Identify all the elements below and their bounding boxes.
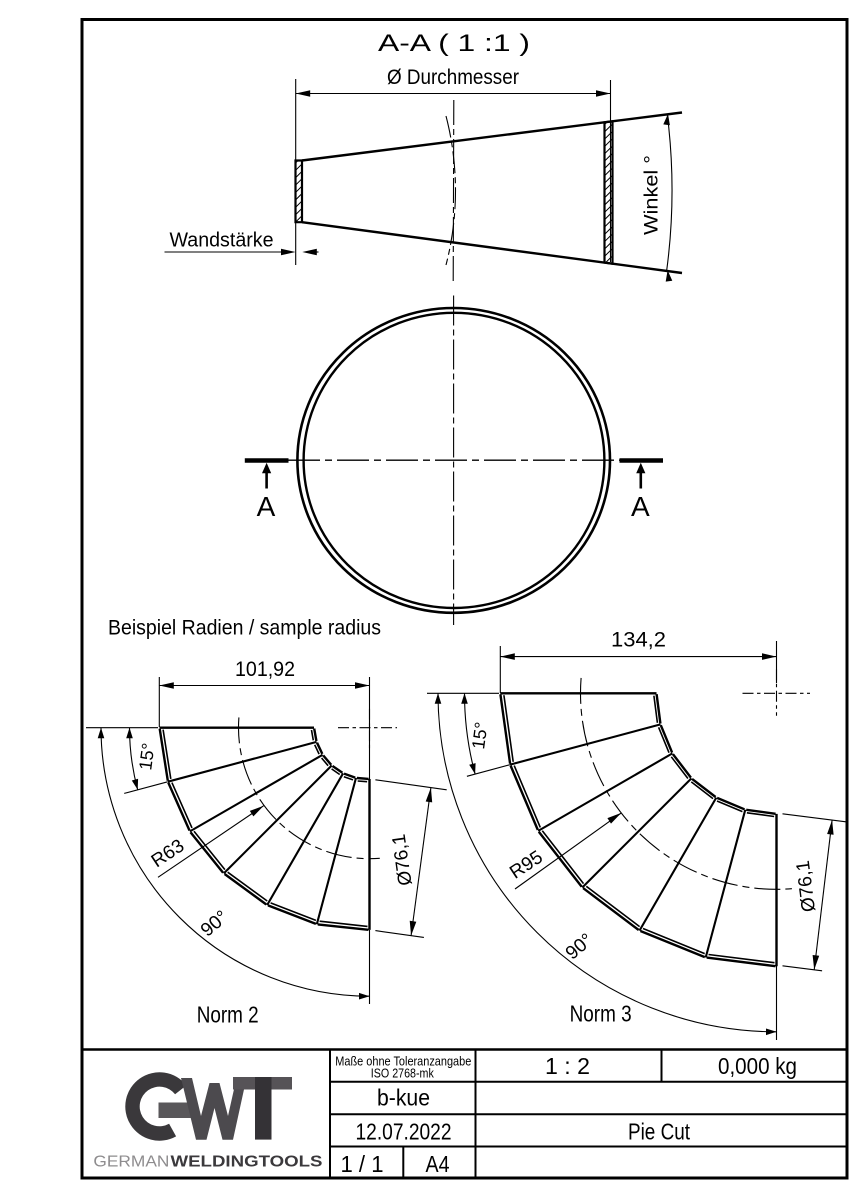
svg-text:A: A	[257, 491, 276, 522]
svg-text:0,000 kg: 0,000 kg	[718, 1053, 797, 1079]
svg-text:A: A	[631, 491, 650, 522]
svg-text:1 : 2: 1 : 2	[545, 1053, 590, 1079]
svg-text:GERMAN: GERMAN	[93, 1154, 169, 1171]
svg-text:Beispiel Radien / sample radiu: Beispiel Radien / sample radius	[108, 617, 381, 640]
svg-text:101,92: 101,92	[235, 658, 295, 681]
svg-text:ISO 2768-mk: ISO 2768-mk	[371, 1066, 434, 1081]
svg-text:Winkel °: Winkel °	[642, 155, 663, 235]
svg-text:12.07.2022: 12.07.2022	[356, 1119, 452, 1145]
svg-text:Pie Cut: Pie Cut	[628, 1119, 690, 1145]
svg-text:Wandstärke: Wandstärke	[170, 229, 274, 251]
svg-text:A4: A4	[426, 1151, 450, 1177]
svg-text:1 / 1: 1 / 1	[341, 1151, 384, 1177]
svg-text:15°: 15°	[135, 742, 158, 772]
svg-text:Norm 3: Norm 3	[570, 1001, 632, 1027]
svg-text:Ø Durchmesser: Ø Durchmesser	[387, 66, 519, 89]
svg-text:A-A ( 1 :1 ): A-A ( 1 :1 )	[378, 30, 530, 57]
svg-text:WELDINGTOOLS: WELDINGTOOLS	[171, 1154, 323, 1171]
svg-text:134,2: 134,2	[611, 629, 666, 652]
svg-text:Norm 2: Norm 2	[197, 1002, 259, 1028]
svg-text:b-kue: b-kue	[377, 1085, 430, 1111]
svg-text:15°: 15°	[468, 721, 491, 751]
